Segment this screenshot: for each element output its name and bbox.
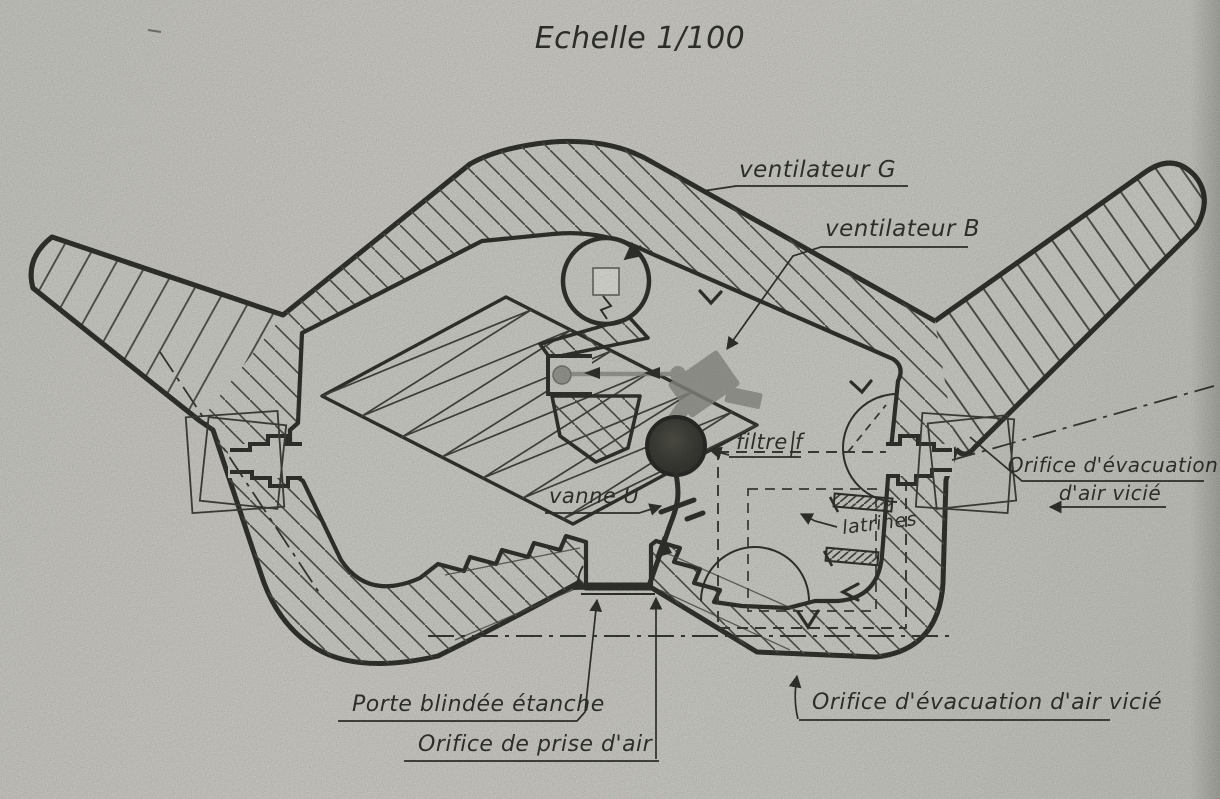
bunker-plan-drawing: Echelle 1/100 ventilateur G ventilateur … <box>0 0 1220 799</box>
page-edge-shadow <box>1190 0 1220 799</box>
scanned-plan-sheet: Echelle 1/100 ventilateur G ventilateur … <box>0 0 1220 799</box>
paper-grain-texture <box>0 0 1220 799</box>
